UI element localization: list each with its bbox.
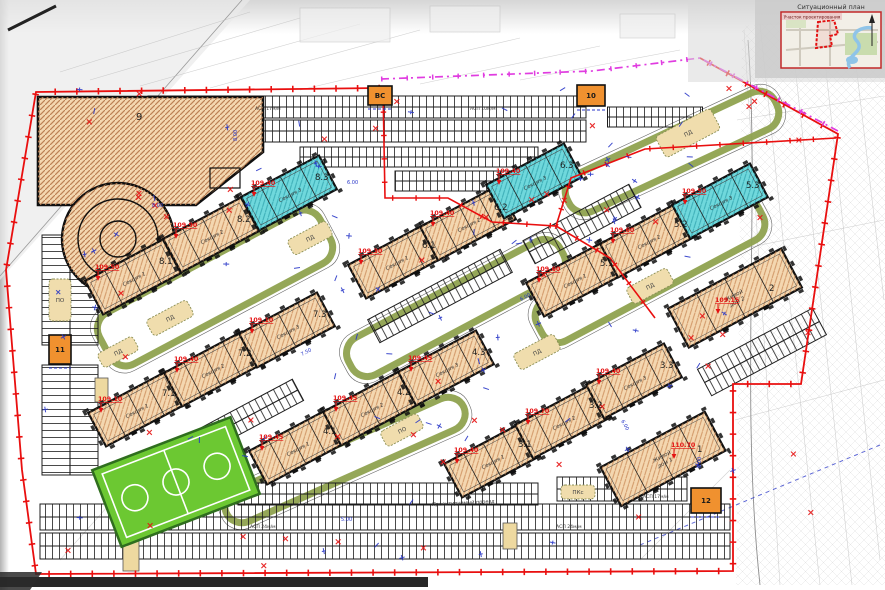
building-number: 4.3 <box>472 348 486 358</box>
blue-survey-mark <box>685 256 691 257</box>
survey-line <box>300 38 520 90</box>
elevation-mark: 109.10 <box>98 396 123 403</box>
blue-survey-mark <box>626 156 632 157</box>
building-number: 3.3 <box>660 361 674 371</box>
dimension-label: 6.00 <box>619 419 630 432</box>
elevation-mark: 109.40 <box>454 447 479 454</box>
situational-plan-inset: Ситуационный план Участок проектирования <box>688 0 885 82</box>
dimension-label: 8.00 <box>152 203 163 209</box>
elevation-mark: 109.40 <box>251 180 276 187</box>
elevation-mark: 109.40 <box>174 356 199 363</box>
survey-line <box>420 46 600 84</box>
dimension-label: 8.00 <box>233 130 239 141</box>
red-cross-mark <box>557 462 562 467</box>
blue-survey-mark <box>697 363 700 368</box>
blue-survey-mark <box>294 267 300 268</box>
blue-survey-mark <box>426 423 432 425</box>
building-number: 8.3 <box>315 173 329 183</box>
building-number: 1 <box>697 445 702 455</box>
blue-survey-mark <box>332 216 338 218</box>
service-number: ВС <box>375 92 385 100</box>
elevation-mark: 109.60 <box>610 227 635 234</box>
blue-survey-mark <box>256 168 261 171</box>
building-number: 6.2 <box>494 203 508 213</box>
existing-shed <box>430 6 500 32</box>
blue-survey-mark <box>586 237 592 243</box>
building-number: 3.2 <box>589 401 603 411</box>
red-cross-mark <box>727 86 732 91</box>
garage-number: 9 <box>136 112 142 123</box>
blue-survey-mark <box>512 240 517 244</box>
building-number: 6.3 <box>560 161 574 171</box>
building-number: 8.1 <box>159 257 173 267</box>
building-number: 7.2 <box>238 349 252 359</box>
building-number: 4.1 <box>323 427 337 437</box>
red-cross-mark <box>720 332 725 337</box>
parking-count-label: АСП 17м/м <box>643 494 669 500</box>
elevation-mark: 109.45 <box>408 355 432 362</box>
elevation-mark: 109.45 <box>259 434 283 441</box>
blue-survey-mark <box>608 143 612 147</box>
blue-survey-mark <box>483 388 489 390</box>
site-plan-drawing: ПДПДПДПДПДПДПОПОПКс 9 Секция 1Секция 2Се… <box>0 0 885 590</box>
playground-ПКс: ПКс <box>561 485 595 499</box>
building-number: 2 <box>769 284 774 294</box>
dimension-label: 6.00 <box>697 457 703 468</box>
elevation-mark: 109.90 <box>173 222 198 229</box>
red-cross-mark <box>590 123 595 128</box>
sheet-edge-bar <box>0 577 428 587</box>
building-number: 4.2 <box>397 388 411 398</box>
blue-survey-mark <box>588 172 594 176</box>
service-number: 12 <box>701 497 711 505</box>
parking-count-label: АСП 17м/м <box>255 106 281 112</box>
blue-survey-mark <box>437 314 443 321</box>
red-cross-mark <box>147 430 152 435</box>
building-number: 7.1 <box>162 389 176 399</box>
elevation-mark: 109.50 <box>682 188 707 195</box>
existing-shed <box>300 8 390 42</box>
blue-survey-mark <box>339 287 345 294</box>
building-number: 7.3 <box>313 310 327 320</box>
elevation-mark: 109.45 <box>333 395 357 402</box>
playground-ПД: ПД <box>512 333 561 370</box>
blue-survey-mark <box>335 275 337 281</box>
elevation-mark: 110.70 <box>671 442 696 449</box>
elevation-mark: 109.70 <box>525 408 550 415</box>
blue-survey-mark <box>465 436 468 441</box>
blue-survey-mark <box>685 93 690 97</box>
playground-ПО: ПО <box>49 279 71 321</box>
sheet-corner-blob <box>0 572 42 590</box>
building-number: 5.3 <box>746 181 760 191</box>
parking-row <box>42 365 98 475</box>
survey-line <box>520 50 680 80</box>
playground-ПД: ПД <box>145 299 194 336</box>
blue-survey-mark <box>560 88 565 91</box>
parking-count-label: АСП 10м/м <box>470 106 496 112</box>
blue-survey-mark <box>437 424 442 429</box>
general-plan-canvas: ПДПДПДПДПДПДПОПОПКс 9 Секция 1Секция 2Се… <box>0 0 885 590</box>
red-cross-mark <box>261 563 266 568</box>
elevation-mark: 109.30 <box>358 248 383 255</box>
elevation-mark: 109.60 <box>536 266 561 273</box>
building-number: 8.2 <box>237 215 251 225</box>
playground-label: ПКс <box>572 490 583 496</box>
existing-shed <box>620 14 675 38</box>
blue-survey-mark <box>223 262 229 266</box>
inset-title: Ситуационный план <box>797 3 864 11</box>
blue-survey-mark <box>496 334 500 340</box>
blue-survey-mark <box>632 328 639 333</box>
building-number: 3.1 <box>518 440 532 450</box>
elevation-mark: 109.40 <box>596 368 621 375</box>
dimension-label: 6.00 <box>347 180 358 186</box>
inset-pond <box>846 56 858 64</box>
elevation-mark: 109.15 <box>715 297 739 304</box>
parking-count-label: АСП 24м/м <box>250 524 276 530</box>
blue-survey-mark <box>631 178 638 185</box>
building-number: 5.2 <box>674 220 688 230</box>
inset-area-label: Участок проектирования <box>784 14 841 20</box>
playground-label: ПО <box>56 298 65 304</box>
service-number: 11 <box>55 346 65 354</box>
parking-count-label: АСП 24м/м <box>556 524 582 530</box>
dimension-label: 7.50 <box>300 347 313 358</box>
elevation-mark: 109.50 <box>95 264 120 271</box>
blue-survey-mark <box>334 373 335 379</box>
playground-ПД: ПД <box>287 220 334 256</box>
building-number: 5.1 <box>600 259 614 269</box>
substation-box <box>503 523 517 549</box>
building-number: 6.1 <box>422 241 436 251</box>
elevation-mark: 109.10 <box>249 317 274 324</box>
service-number: 10 <box>586 92 596 100</box>
red-cross-mark <box>472 418 477 423</box>
elevation-mark: 109.40 <box>430 210 455 217</box>
parking-row <box>300 147 538 167</box>
dimension-label: 5.00 <box>341 517 352 523</box>
blue-survey-mark <box>516 243 522 244</box>
elevation-mark: 109.40 <box>496 168 521 175</box>
blue-survey-mark <box>346 233 352 239</box>
